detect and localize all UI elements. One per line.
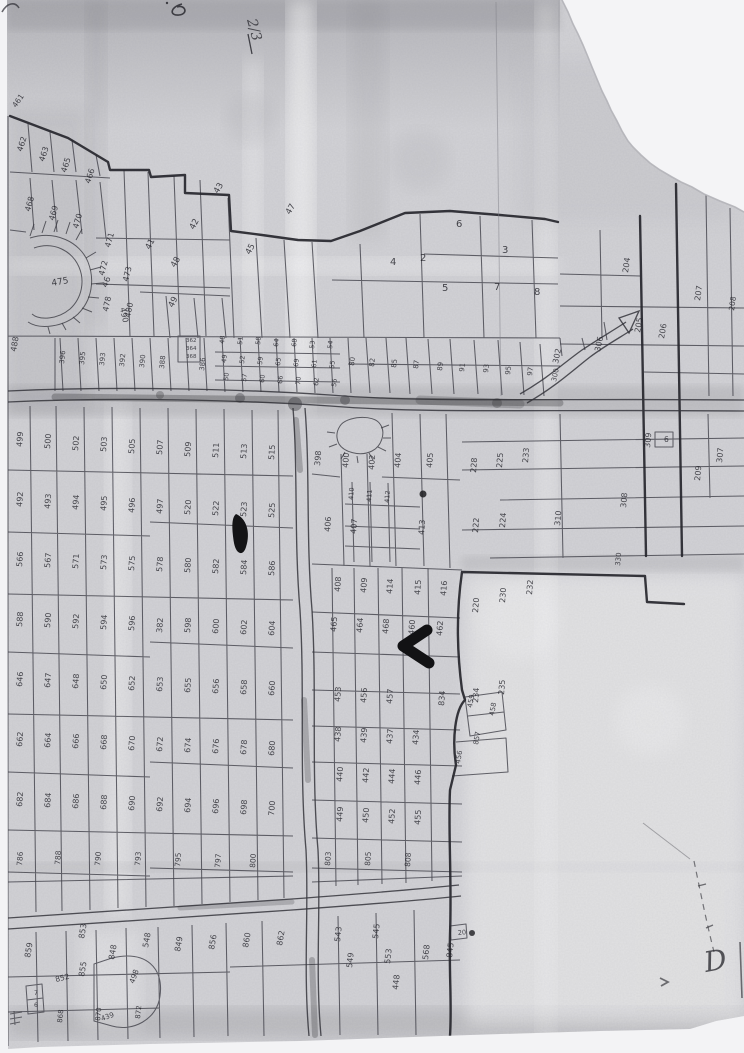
parcel-label: 502 <box>71 435 81 451</box>
parcel-label: 460 <box>407 619 417 635</box>
parcel-label: 91 <box>458 362 467 372</box>
parcel-label: 515 <box>267 444 277 460</box>
parcel-label: 680 <box>267 740 277 756</box>
parcel-label: 404 <box>393 452 403 468</box>
parcel-label: 95 <box>504 365 513 375</box>
parcel-label: 690 <box>127 795 137 811</box>
parcel-label: 57 <box>240 373 249 382</box>
parcel-label: 522 <box>211 500 221 516</box>
parcel-label: 4 <box>390 257 396 268</box>
parcel-label: 437 <box>385 728 395 744</box>
parcel-label: 307 <box>715 447 725 463</box>
parcel-label: 411 <box>365 489 374 502</box>
parcel-label: 497 <box>155 498 165 514</box>
parcel-label: 688 <box>99 794 109 810</box>
parcel-label: 496 <box>127 497 137 513</box>
parcel-label: 509 <box>183 441 193 457</box>
parcel-label: 656 <box>211 678 221 694</box>
parcel-label: 410 <box>347 487 356 500</box>
parcel-label: 442 <box>361 767 371 783</box>
parcel-label: 786 <box>15 851 25 866</box>
parcel-label: 93 <box>482 363 491 373</box>
parcel-label: 566 <box>15 551 25 567</box>
parcel-label: 553 <box>383 948 394 964</box>
parcel-label: 61 <box>310 359 319 368</box>
parcel-label: 582 <box>211 558 221 574</box>
parcel-label: 50 <box>222 372 231 381</box>
parcel-label: 209 <box>693 465 703 481</box>
parcel-label: 805 <box>363 851 373 866</box>
parcel-label: 407 <box>349 518 359 534</box>
parcel-label: 464 <box>355 617 365 633</box>
parcel-label: 65 <box>274 357 283 366</box>
parcel-label: 97 <box>526 366 535 376</box>
parcel-label: 646 <box>15 671 25 687</box>
parcel-label: 543 <box>333 926 344 942</box>
parcel-label: 567 <box>43 552 53 568</box>
parcel-label: 602 <box>239 619 249 635</box>
parcel-label: 439 <box>359 727 369 743</box>
parcel-label: 674 <box>183 737 193 753</box>
parcel-label: 845 <box>445 942 456 958</box>
parcel-label: 797 <box>213 853 223 868</box>
parcel-label: 68 <box>290 338 299 347</box>
parcel-label: 398 <box>313 450 323 466</box>
parcel-label: 678 <box>239 739 249 755</box>
parcel-label: 668 <box>99 734 109 750</box>
parcel-label: 650 <box>99 674 109 690</box>
parcel-label: 402 <box>367 454 377 470</box>
parcel-label: 684 <box>43 792 53 808</box>
parcel-label: 580 <box>183 557 193 573</box>
parcel-label: 788 <box>53 850 63 865</box>
parcel-label: 568 <box>421 944 432 960</box>
parcel-label: 230 <box>498 587 508 603</box>
parcel-label: 492 <box>15 491 25 507</box>
parcel-label: 494 <box>71 494 81 510</box>
parcel-label: 220 <box>471 597 481 613</box>
parcel-label: 507 <box>155 439 165 455</box>
parcel-label: 448 <box>391 974 402 990</box>
parcel-label: 682 <box>15 791 25 807</box>
parcel-label: 457 <box>385 688 395 704</box>
parcel-label: 228 <box>469 457 479 473</box>
parcel-label: 584 <box>239 559 249 575</box>
parcel-label: 434 <box>411 729 421 745</box>
parcel-label: 523 <box>239 501 249 517</box>
parcel-label: 400 <box>341 452 351 468</box>
parcel-label: 868 <box>56 1009 65 1023</box>
parcel-label: 600 <box>211 618 221 634</box>
parcel-label: 416 <box>439 580 449 596</box>
parcel-label: 62 <box>312 377 321 386</box>
parcel-label: 52 <box>238 355 247 364</box>
parcel-label: 808 <box>403 852 413 867</box>
parcel-label: 382 <box>155 617 165 633</box>
parcel-label: 578 <box>155 556 165 572</box>
parcel-label: 604 <box>267 620 277 636</box>
parcel-label: 575 <box>127 555 137 571</box>
parcel-label: 80 <box>348 356 357 366</box>
parcel-label: 653 <box>155 676 165 692</box>
parcel-label: 364 <box>186 346 197 352</box>
parcel-label: 655 <box>183 677 193 693</box>
parcel-label: 48 <box>218 335 227 344</box>
parcel-label: 662 <box>15 731 25 747</box>
top-squiggle-dot <box>166 2 168 4</box>
parcel-label: 412 <box>383 490 392 503</box>
parcel-label: 676 <box>211 738 221 754</box>
parcel-label: 82 <box>368 357 377 367</box>
parcel-label: 571 <box>71 553 81 569</box>
parcel-label: 456 <box>359 687 369 703</box>
parcel-label: 5 <box>442 283 448 294</box>
parcel-label: 592 <box>71 613 81 629</box>
parcel-label: 66 <box>276 375 285 384</box>
parcel-label: 834 <box>437 690 447 706</box>
parcel-label: 60 <box>258 374 267 383</box>
parcel-label: 6 <box>664 435 669 444</box>
parcel-label: 3 <box>502 245 508 256</box>
parcel-label: 686 <box>71 793 81 809</box>
parcel-label: 59 <box>256 356 265 365</box>
parcel-label: 672 <box>155 736 165 752</box>
parcel-label: 462 <box>435 620 445 636</box>
parcel-label: 64 <box>272 338 281 347</box>
parcel-label: 405 <box>425 452 435 468</box>
parcel-label: 573 <box>99 554 109 570</box>
parcel-label: 803 <box>323 851 333 866</box>
boxed-number: 20 <box>457 928 466 937</box>
parcel-label: 53 <box>308 340 317 349</box>
parcel-label: 468 <box>381 618 391 634</box>
parcel-label: 49 <box>220 354 229 363</box>
parcel-label: 586 <box>267 560 277 576</box>
parcel-label: 493 <box>43 493 53 509</box>
parcel-label: 670 <box>127 735 137 751</box>
parcel-label: 390 <box>138 354 147 368</box>
parcel-label: 872 <box>134 1005 143 1019</box>
parcel-label: 54 <box>326 340 335 349</box>
parcel-label: 800 <box>248 853 258 868</box>
parcel-label: 440 <box>335 766 345 782</box>
scanned-cadastral-map-page: 4614624634654664684694704714724734784804… <box>0 0 744 1053</box>
parcel-label: 6 <box>34 1002 38 1009</box>
parcel-label: 549 <box>345 952 356 968</box>
parcel-label: 69 <box>292 358 301 367</box>
parcel-label: 309 <box>643 432 653 448</box>
map-canvas: 4614624634654664684694704714724734784804… <box>0 0 744 1053</box>
parcel-label: 6 <box>456 219 462 230</box>
parcel-label: 520 <box>183 499 193 515</box>
parcel-label: 396 <box>58 350 67 365</box>
parcel-label: 692 <box>155 796 165 812</box>
parcel-label: 58 <box>254 336 263 345</box>
parcel-label: 664 <box>43 732 53 748</box>
parcel-label: 235 <box>497 679 507 695</box>
parcel-label: 652 <box>127 675 137 691</box>
parcel-label: 452 <box>387 808 397 824</box>
parcel-label: 503 <box>99 436 109 452</box>
parcel-label: 386 <box>198 357 207 372</box>
parcel-label: 511 <box>211 442 221 458</box>
parcel-label: 505 <box>127 438 137 454</box>
parcel-label: 2 <box>420 253 426 264</box>
parcel-label: 647 <box>43 672 53 688</box>
parcel-label: 453 <box>333 686 343 702</box>
parcel-label: 406 <box>323 516 333 532</box>
parcel-label: 225 <box>495 452 505 468</box>
parcel-label: 330 <box>614 552 623 566</box>
parcel-label: 450 <box>361 807 371 823</box>
parcel-label: 222 <box>471 517 481 533</box>
parcel-label: 700 <box>267 800 277 816</box>
parcel-label: 85 <box>390 358 399 368</box>
parcel-label: 408 <box>333 576 343 592</box>
parcel-label: 870 <box>94 1007 103 1021</box>
parcel-label: 455 <box>413 809 423 825</box>
parcel-label: 233 <box>521 447 531 463</box>
parcel-label: 362 <box>186 338 197 344</box>
parcel-label: 790 <box>93 851 103 866</box>
parcel-label: 415 <box>413 579 423 595</box>
parcel-label: 793 <box>133 851 143 866</box>
parcel-label: 70 <box>294 376 303 385</box>
parcel-label: 308 <box>619 492 629 508</box>
parcel-label: 694 <box>183 797 193 813</box>
parcel-label: 795 <box>173 852 183 867</box>
parcel-label: 495 <box>99 495 109 511</box>
parcel-label: 525 <box>267 502 277 518</box>
parcel-label: 660 <box>267 680 277 696</box>
parcel-label: 413 <box>417 519 427 535</box>
parcel-label: 56 <box>330 378 339 387</box>
parcel-label: 658 <box>239 679 249 695</box>
parcel-label: 449 <box>335 806 345 822</box>
parcel-label: 438 <box>333 726 343 742</box>
parcel-label: 55 <box>328 360 337 369</box>
parcel-label: 698 <box>239 799 249 815</box>
parcel-label: 598 <box>183 617 193 633</box>
parcel-label: 393 <box>98 352 107 366</box>
parcel-label: 648 <box>71 673 81 689</box>
parcel-label: 500 <box>43 433 53 449</box>
parcel-label: 590 <box>43 612 53 628</box>
parcel-label: 499 <box>15 431 25 447</box>
parcel-label: 444 <box>387 768 397 784</box>
parcel-label: 310 <box>553 510 563 526</box>
parcel-label: 414 <box>385 578 395 594</box>
parcel-label: 89 <box>436 361 445 371</box>
parcel-label: 368 <box>186 354 197 360</box>
parcel-label: 666 <box>71 733 81 749</box>
parcel-label: 409 <box>359 577 369 593</box>
parcel-label: 395 <box>78 351 87 365</box>
parcel-label: 446 <box>413 769 423 785</box>
parcel-label: 465 <box>329 616 339 632</box>
parcel-label: 696 <box>211 798 221 814</box>
parcel-label: 588 <box>15 611 25 627</box>
parcel-label: 513 <box>239 443 249 459</box>
parcel-label: 388 <box>158 355 167 369</box>
parcel-label: 8 <box>534 287 540 298</box>
parcel-label: 594 <box>99 614 109 630</box>
parcel-label: 224 <box>498 512 508 528</box>
parcel-label: 232 <box>525 579 535 595</box>
parcel-label: 7 <box>34 990 38 997</box>
parcel-label: 51 <box>236 336 245 345</box>
parcel-label: 7 <box>494 282 500 293</box>
parcel-label: 87 <box>412 359 421 369</box>
parcel-label: 596 <box>127 615 137 631</box>
parcel-label: 392 <box>118 353 127 367</box>
parcel-label: 545 <box>371 923 382 939</box>
